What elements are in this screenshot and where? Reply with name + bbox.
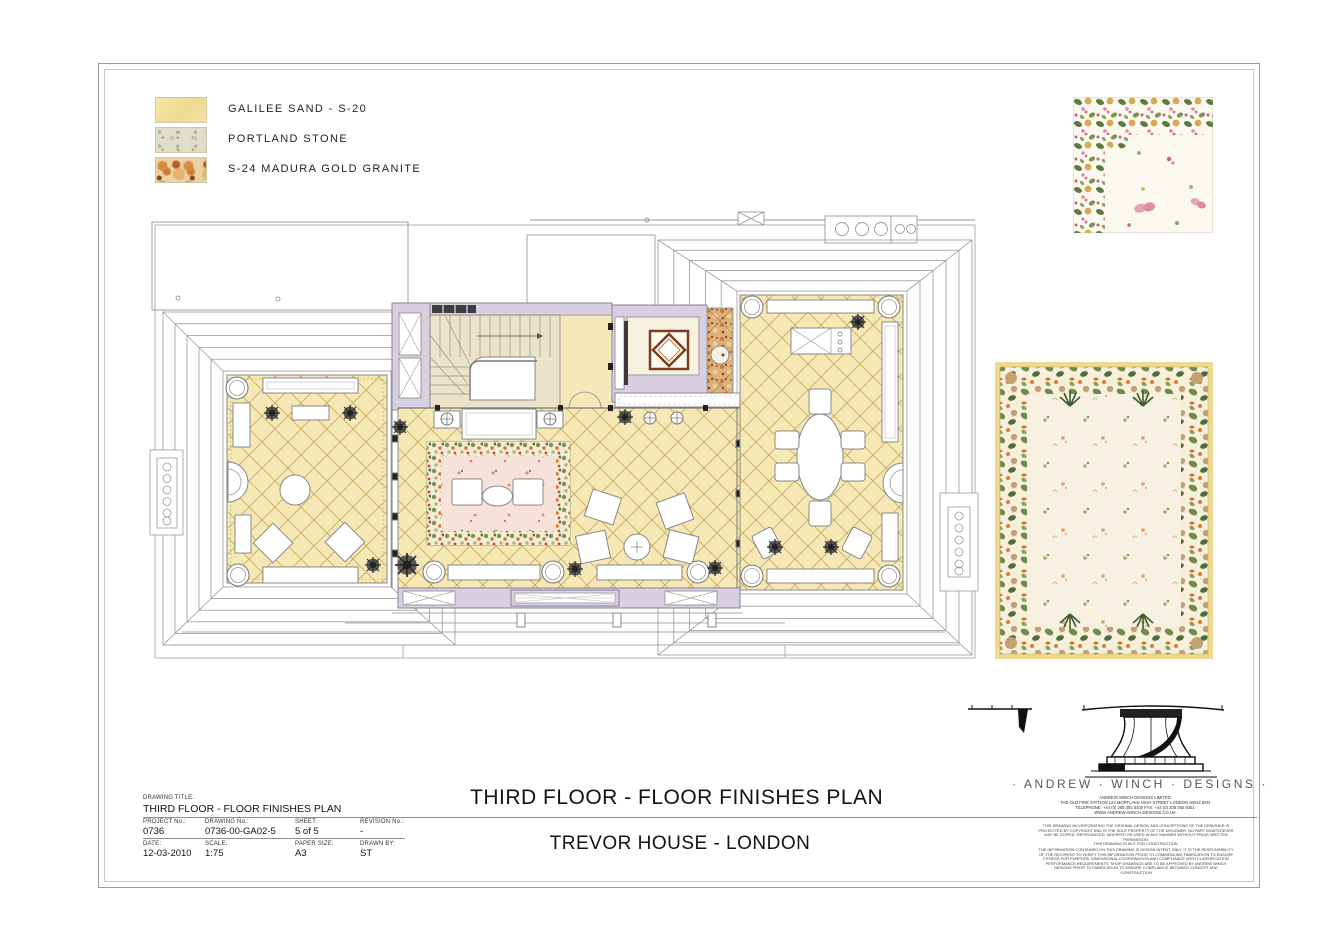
legend-swatch-galilee-sand — [155, 97, 207, 123]
wc-granite — [707, 308, 733, 398]
drawing-sheet: GALILEE SAND - S-20 PORTLAND STONE S-24 … — [0, 0, 1336, 945]
paper-size-label: PAPER SIZE: — [295, 841, 334, 847]
scale-value: 1:75 — [205, 848, 224, 859]
legend-label: S-24 MADURA GOLD GRANITE — [228, 157, 421, 181]
sheet-label: SHEET: — [295, 819, 317, 825]
wall-divider-west — [392, 408, 398, 588]
drawn-by-label: DRAWN BY: — [360, 841, 395, 847]
bench — [448, 565, 540, 580]
bench — [767, 300, 874, 313]
project-no-value: 0736 — [143, 826, 164, 837]
drawing-title-label: DRAWING TITLE: — [143, 795, 194, 801]
rug-image — [995, 362, 1213, 664]
sheet-value: 5 of 5 — [295, 826, 319, 837]
elevator — [608, 305, 707, 402]
drawn-by-value: ST — [360, 848, 372, 859]
scale-label: SCALE: — [205, 841, 228, 847]
bench — [263, 567, 358, 583]
floor-plan — [145, 195, 985, 680]
revision-no-label: REVISION No.: — [360, 819, 404, 825]
date-label: DATE: — [143, 841, 161, 847]
legend-swatch-madura-gold — [155, 157, 207, 183]
brand-website: WWW.ANDREW-WINCH-DESIGNS.CO.UK — [1040, 810, 1230, 815]
left-terrace — [226, 375, 387, 586]
fabric-swatch-image — [1073, 97, 1213, 238]
paper-size-value: A3 — [295, 848, 307, 859]
bench — [597, 565, 682, 580]
coffee-table — [483, 486, 513, 506]
brand-disclaimer-intent: THE INFORMATION CONTAINED ON THIS DRAWIN… — [1038, 848, 1234, 876]
drawing-title-value: THIRD FLOOR - FLOOR FINISHES PLAN — [143, 803, 341, 815]
legend-label: GALILEE SAND - S-20 — [228, 97, 367, 121]
legend-swatch-portland-stone — [155, 127, 207, 153]
window-seat — [615, 393, 760, 407]
dining-table — [797, 414, 843, 500]
drawing-no-label: DRAWING No.: — [205, 819, 249, 825]
chimney-block — [825, 216, 917, 243]
project-no-label: PROJECT No.: — [143, 819, 186, 825]
bench — [882, 322, 898, 442]
wood-inlay — [650, 331, 688, 369]
armchair — [513, 479, 543, 505]
brand-disclaimer-copyright: THIS DRAWING INCORPORATING THE ORIGINAL … — [1038, 824, 1234, 842]
left-window-bay — [150, 450, 183, 535]
dining-terrace — [740, 295, 903, 590]
roof-block-top-left — [152, 222, 408, 310]
round-table — [280, 475, 310, 505]
sideboard — [791, 328, 851, 354]
south-wall — [398, 588, 740, 627]
stair-hall — [392, 303, 618, 410]
bench — [882, 513, 898, 561]
revision-no-value: - — [360, 826, 363, 837]
stair-rail — [432, 305, 476, 313]
title-block: DRAWING TITLE: THIRD FLOOR - FLOOR FINIS… — [143, 793, 413, 859]
armchair — [452, 479, 482, 505]
bench — [233, 403, 250, 447]
drawing-no-value: 0736-00-GA02-5 — [205, 826, 276, 837]
bench — [263, 378, 358, 393]
legend: GALILEE SAND - S-20 PORTLAND STONE S-24 … — [155, 97, 555, 187]
sofa — [462, 409, 536, 439]
legend-label: PORTLAND STONE — [228, 127, 348, 151]
plan-title: THIRD FLOOR - FLOOR FINISHES PLAN — [470, 786, 880, 810]
basin — [711, 346, 729, 364]
date-value: 12-03-2010 — [143, 848, 192, 859]
winch-logo-illustration — [960, 695, 1245, 788]
brand-logo-text: · ANDREW · WINCH · DESIGNS · — [1012, 777, 1258, 791]
project-title: TREVOR HOUSE - LONDON — [520, 833, 840, 855]
bench — [235, 515, 251, 553]
right-window-bay — [940, 493, 978, 591]
brand-disclaimer-construction: THIS DRAWING IS NOT FOR CONSTRUCTION. — [1038, 842, 1234, 847]
stair-landing — [470, 357, 535, 400]
living-room — [392, 405, 740, 588]
bench — [767, 569, 874, 583]
table — [292, 406, 329, 420]
